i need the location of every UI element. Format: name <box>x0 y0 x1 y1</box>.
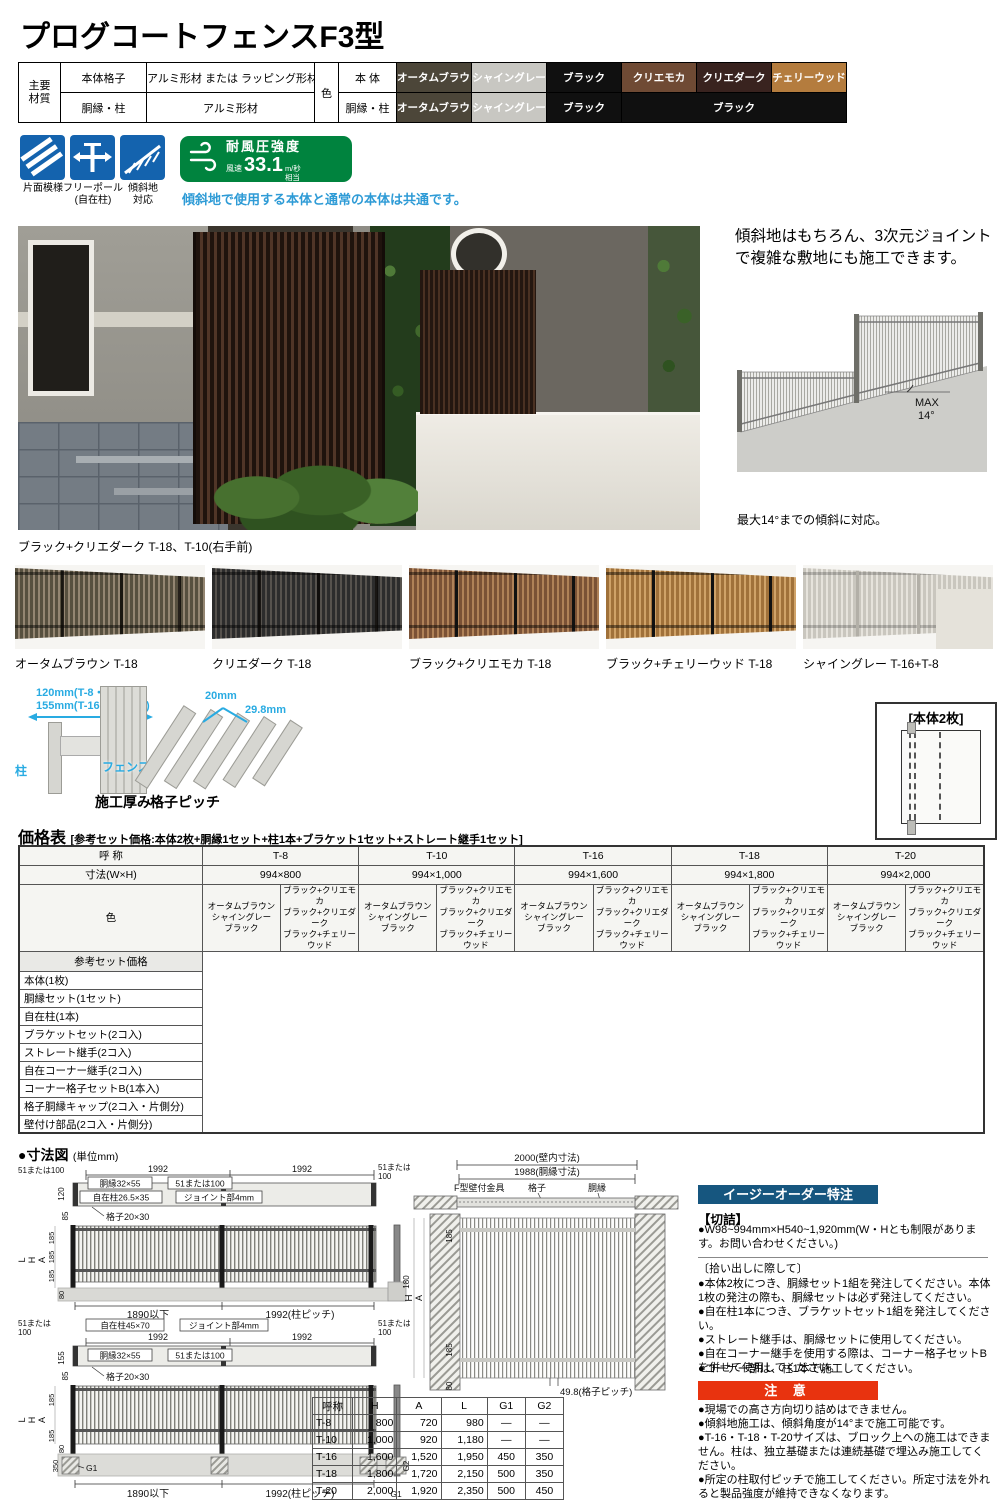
free-pole-icon <box>70 135 115 180</box>
dim-label: 100 <box>378 1328 392 1337</box>
wind-pressure-badge: 耐風圧強度 風速 33.1 m/秒 相当 <box>180 136 352 182</box>
spec-cell: — <box>487 1415 525 1432</box>
dim-label: 自在柱45×70 <box>100 1321 150 1331</box>
size-dimension: 994×1,000 <box>359 865 515 884</box>
dim-label: ジョイント部4mm <box>184 1193 254 1203</box>
dim-label: A <box>37 1257 47 1263</box>
single-face-pattern-icon <box>20 135 65 180</box>
two-panel-box: [本体2枚] <box>875 702 997 840</box>
size-header: T-18 <box>671 846 827 865</box>
slope-heading-line1: 傾斜地はもちろん、3次元ジョイント <box>735 226 993 248</box>
dim-label: 1992 <box>148 1332 168 1342</box>
white-garden-wall <box>416 412 700 530</box>
wall-mount-diagram: 2000(壁内寸法) 1988(胴縁寸法) F型壁付金具 格子 胴縁 185 H… <box>402 1152 704 1398</box>
dim-label: A <box>414 1295 424 1301</box>
post-stub-bottom <box>907 820 916 835</box>
size-header: T-20 <box>828 846 984 865</box>
dim-label: A <box>37 1417 47 1423</box>
color-swatch: ブラック <box>547 63 622 93</box>
dim-label: 185 <box>47 1251 56 1264</box>
icon-label: 傾斜地 対応 <box>108 183 178 206</box>
spec-cell: 350 <box>525 1466 563 1483</box>
dim-label: 胴縁32×55 <box>100 1179 141 1189</box>
dim-label: 120 <box>57 1187 66 1201</box>
color-swatch: ブラック <box>547 93 622 123</box>
post-label: 柱 <box>15 762 27 779</box>
spec-cell: 800 <box>353 1415 397 1432</box>
slope-heading: 傾斜地はもちろん、3次元ジョイント で複雑な敷地にも施工できます。 <box>735 226 993 269</box>
spec-cell: 720 <box>397 1415 441 1432</box>
badge-value: 33.1 <box>244 155 283 175</box>
color-group-a: オータムブラウン シャイングレー ブラック <box>359 884 437 951</box>
dim-label: 185 <box>47 1232 56 1245</box>
pickup-note: ●自在柱1本につき、ブラケットセット1組を発注してください。 <box>698 1306 994 1334</box>
variation-caption: ブラック+クリエモカ T-18 <box>409 655 551 672</box>
spec-cell: 2,000 <box>353 1483 397 1500</box>
spec-header: G1 <box>487 1398 525 1415</box>
corner-note: ●コーナー部は、柱1本で施工してください。 <box>698 1363 994 1377</box>
variation-caption: クリエダーク T-18 <box>212 655 311 672</box>
col-name-header: 呼 称 <box>19 846 202 865</box>
spec-cell: 2,150 <box>441 1466 487 1483</box>
caution-note: ●現場での高さ方向切り詰めはできません。 <box>698 1404 994 1418</box>
price-table: 呼 称 T-8 T-10 T-16 T-18 T-20 寸法(W×H) 994×… <box>18 845 985 1134</box>
dim-label: 51または100 <box>18 1166 65 1175</box>
spec-header: L <box>441 1398 487 1415</box>
spec-cell: — <box>525 1432 563 1449</box>
price-values-empty-area <box>202 951 984 1133</box>
dim-label: 185 <box>445 1229 454 1243</box>
dim-label: 85 <box>61 1371 70 1380</box>
color-target-frame: 胴縁・柱 <box>339 93 397 123</box>
dim-label: H <box>27 1417 37 1424</box>
dim-label: 1988(胴縁寸法) <box>514 1166 579 1178</box>
color-swatch: シャイングレー <box>472 93 547 123</box>
variation-caption: ブラック+チェリーウッド T-18 <box>606 655 772 672</box>
size-header: T-16 <box>515 846 671 865</box>
dim-label: 49.8(格子ピッチ) <box>560 1386 632 1398</box>
spec-cell: — <box>487 1432 525 1449</box>
spec-header: A <box>397 1398 441 1415</box>
price-row-label: 格子胴縁キャップ(2コ入・片側分) <box>19 1097 202 1115</box>
variation-image-shine-gray <box>803 565 993 649</box>
slope-support-icon <box>120 135 165 180</box>
price-row-label: ストレート継手(2コ入) <box>19 1043 202 1061</box>
size-dimension: 994×2,000 <box>828 865 984 884</box>
thickness-caption: 施工厚み <box>95 792 151 812</box>
easy-order-header: イージーオーダー特注 <box>698 1185 878 1204</box>
size-header: T-10 <box>359 846 515 865</box>
dim-label: 2000(壁内寸法) <box>514 1152 579 1164</box>
spec-cell: 450 <box>487 1449 525 1466</box>
color-group-b: ブラック+クリエモカ ブラック+クリエダーク ブラック+チェリーウッド <box>437 884 515 951</box>
dim-label: L <box>18 1257 27 1262</box>
spec-cell: 450 <box>525 1483 563 1500</box>
materials-material: アルミ形材 または ラッピング形材 <box>147 63 315 93</box>
dim-label: 100 <box>18 1328 32 1337</box>
dim-label: 1992 <box>292 1332 312 1342</box>
spec-cell: T-20 <box>313 1483 353 1500</box>
dim-label: 1992 <box>292 1164 312 1174</box>
color-swatch: チェリーウッド <box>772 63 847 93</box>
dimension-title: ●寸法図 <box>18 1147 68 1163</box>
color-group-b: ブラック+クリエモカ ブラック+クリエダーク ブラック+チェリーウッド <box>281 884 359 951</box>
dim-label: 1890以下 <box>127 1489 169 1500</box>
color-target-body: 本 体 <box>339 63 397 93</box>
variation-image-black-clie-mocha <box>409 565 599 649</box>
left-window <box>28 240 94 396</box>
spec-cell: T-18 <box>313 1466 353 1483</box>
slope-caption: 最大14°までの傾斜に対応。 <box>737 511 887 528</box>
price-row-label: 胴縁セット(1セット) <box>19 989 202 1007</box>
materials-part-label: 胴縁・柱 <box>61 93 147 123</box>
color-swatch-wide: ブラック <box>622 93 847 123</box>
size-dimension: 994×800 <box>202 865 358 884</box>
spec-cell: 920 <box>397 1432 441 1449</box>
spec-cell: 1,950 <box>441 1449 487 1466</box>
spec-cell: — <box>525 1415 563 1432</box>
dim-label: 80 <box>57 1445 66 1453</box>
hero-caption: ブラック+クリエダーク T-18、T-10(右手前) <box>18 538 252 555</box>
variation-image-clie-dark <box>212 565 402 649</box>
panel-dash-center <box>939 732 941 820</box>
variation-image-black-cherry-wood <box>606 565 796 649</box>
spec-cell: 1,180 <box>441 1432 487 1449</box>
color-group-b: ブラック+クリエモカ ブラック+クリエダーク ブラック+チェリーウッド <box>906 884 984 951</box>
dim-label: L <box>18 1417 27 1422</box>
color-swatch: クリエダーク <box>697 63 772 93</box>
variation-caption: オータムブラウン T-18 <box>15 655 138 672</box>
col-color-header: 色 <box>19 884 202 951</box>
size-dimension: 994×1,600 <box>515 865 671 884</box>
color-group-b: ブラック+クリエモカ ブラック+クリエダーク ブラック+チェリーウッド <box>749 884 827 951</box>
color-swatch: クリエモカ <box>622 63 697 93</box>
spec-cell: 1,720 <box>397 1466 441 1483</box>
caution-note: ●傾斜地施工は、傾斜角度が14°まで施工可能です。 <box>698 1418 994 1432</box>
bracket-shape <box>60 736 102 756</box>
spec-table: 呼称 H A L G1 G2 T-8800720980—— T-101,0009… <box>312 1397 564 1500</box>
dim-label: 85 <box>61 1211 70 1220</box>
color-group-a: オータムブラウン シャイングレー ブラック <box>671 884 749 951</box>
set-price-row-header: 参考セット価格 <box>19 951 202 971</box>
materials-material: アルミ形材 <box>147 93 315 123</box>
color-column-label: 色 <box>315 63 339 123</box>
slope-common-note: 傾斜地で使用する本体と通常の本体は共通です。 <box>182 189 467 208</box>
panel-dash-left <box>909 732 911 820</box>
dim-label: 51または100 <box>175 1179 224 1189</box>
catalog-page: { "page": { "title": "プログコートフェンスF3型" }, … <box>0 0 1000 1500</box>
spec-cell: 2,350 <box>441 1483 487 1500</box>
right-slat-fence <box>420 270 536 414</box>
price-row-label: コーナー格子セットB(1本入) <box>19 1079 202 1097</box>
variation-caption: シャイングレー T-16+T-8 <box>803 655 939 672</box>
pitch-dim-2: 29.8mm <box>245 704 286 716</box>
materials-table: 主要 材質 本体格子 アルミ形材 または ラッピング形材 色 本 体 オータムブ… <box>18 62 847 123</box>
materials-group-label: 主要 材質 <box>19 63 61 123</box>
dim-label: 185 <box>47 1394 56 1407</box>
dim-label: 胴縁 <box>588 1182 606 1193</box>
pickup-heading: 〔拾い出しに際して〕 <box>698 1263 994 1277</box>
badge-suffix: 相当 <box>285 174 301 182</box>
dim-label: 350 <box>51 1460 60 1473</box>
color-swatch: オータムブラウン <box>397 93 472 123</box>
color-swatch: シャイングレー <box>472 63 547 93</box>
panel-outline <box>901 730 981 824</box>
front-bushes <box>203 458 418 530</box>
price-row-label: 自在コーナー継手(2コ入) <box>19 1061 202 1079</box>
price-row-label: 壁付け部品(2コ入・片側分) <box>19 1115 202 1133</box>
dim-label: 格子 <box>528 1182 546 1193</box>
color-group-a: オータムブラウン シャイングレー ブラック <box>202 884 280 951</box>
badge-prefix: 風速 <box>226 165 242 173</box>
spec-cell: T-10 <box>313 1432 353 1449</box>
dim-label: G1 <box>86 1463 98 1473</box>
pickup-note: ●本体2枚につき、胴縁セット1組を発注してください。本体1枚の発注の際も、胴縁セ… <box>698 1278 994 1306</box>
dim-label: 155 <box>57 1351 66 1365</box>
page-title: プログコートフェンスF3型 <box>20 12 384 56</box>
caution-note: ●所定の柱取付ピッチで施工してください。所定寸法を外れると製品強度が維持できなく… <box>698 1474 994 1502</box>
price-row-label: 本体(1枚) <box>19 971 202 989</box>
price-row-label: ブラケットセット(2コ入) <box>19 1025 202 1043</box>
dim-label: 51または <box>18 1319 51 1328</box>
dim-label: 80 <box>57 1291 66 1299</box>
caution-header: 注 意 <box>698 1381 878 1400</box>
dim-label: 胴縁32×55 <box>100 1351 141 1361</box>
spec-header: G2 <box>525 1398 563 1415</box>
size-header: T-8 <box>202 846 358 865</box>
spec-header: 呼称 <box>313 1398 353 1415</box>
dim-label: 格子20×30 <box>106 1211 149 1222</box>
spec-cell: 1,800 <box>353 1466 397 1483</box>
pickup-note: ●ストレート継手は、胴縁セットに使用してください。 <box>698 1334 994 1348</box>
color-group-b: ブラック+クリエモカ ブラック+クリエダーク ブラック+チェリーウッド <box>593 884 671 951</box>
variation-image-autumn-brown <box>15 565 205 649</box>
slope-max-degrees: 14° <box>918 410 935 422</box>
pitch-caption: 格子ピッチ <box>150 792 220 812</box>
dim-label: ジョイント部4mm <box>189 1321 259 1331</box>
price-row-label: 自在柱(1本) <box>19 1007 202 1025</box>
spec-cell: 350 <box>525 1449 563 1466</box>
two-panel-title: [本体2枚] <box>877 708 995 727</box>
panel-dash-left2 <box>914 732 916 820</box>
color-swatch: オータムブラウン <box>397 63 472 93</box>
right-top-plants <box>648 226 700 426</box>
dim-label: 185 <box>445 1343 454 1357</box>
wind-icon <box>188 141 220 178</box>
spec-cell: 980 <box>441 1415 487 1432</box>
materials-part-label: 本体格子 <box>61 63 147 93</box>
dim-label: 185 <box>47 1430 56 1443</box>
post-section-shape <box>48 722 62 794</box>
color-group-a: オータムブラウン シャイングレー ブラック <box>515 884 593 951</box>
slope-illustration: MAX 14° <box>735 266 990 508</box>
spec-cell: 1,000 <box>353 1432 397 1449</box>
dim-label: 80 <box>445 1381 454 1390</box>
size-dimension: 994×1,800 <box>671 865 827 884</box>
dim-label: 自在柱26.5×35 <box>93 1193 150 1203</box>
post-stub-top <box>907 722 916 734</box>
divider <box>698 1257 988 1258</box>
dim-label: 1992 <box>148 1164 168 1174</box>
spec-cell: 1,600 <box>353 1449 397 1466</box>
cut-order-body: ●W98~994mm×H540~1,920mm(W・Hとも制限があります。お問い… <box>698 1224 994 1252</box>
spec-cell: 1,520 <box>397 1449 441 1466</box>
pitch-dim-1: 20mm <box>205 690 237 702</box>
col-dim-header: 寸法(W×H) <box>19 865 202 884</box>
dimension-diagram-1: 51または100 1992 1992 51または 100 胴縁32×55 51ま… <box>18 1162 410 1320</box>
dim-label: 185 <box>47 1270 56 1283</box>
caution-note: ●T-16・T-18・T-20サイズは、ブロック上への施工はできません。柱は、独… <box>698 1432 994 1474</box>
dim-label: H <box>27 1257 37 1264</box>
slope-max-label: MAX <box>915 397 940 409</box>
dim-label: F型壁付金具 <box>454 1182 505 1193</box>
hero-photo <box>18 226 700 530</box>
dim-label: 51または100 <box>175 1351 224 1361</box>
dim-label: 格子20×30 <box>106 1371 149 1382</box>
spec-cell: T-8 <box>313 1415 353 1432</box>
spec-header: H <box>353 1398 397 1415</box>
spec-cell: 500 <box>487 1466 525 1483</box>
caution-notes: ●現場での高さ方向切り詰めはできません。 ●傾斜地施工は、傾斜角度が14°まで施… <box>698 1404 994 1502</box>
dim-label: 100 <box>378 1172 392 1181</box>
spec-cell: 500 <box>487 1483 525 1500</box>
color-group-a: オータムブラウン シャイングレー ブラック <box>828 884 906 951</box>
spec-cell: 1,920 <box>397 1483 441 1500</box>
pickup-notes: ●本体2枚につき、胴縁セット1組を発注してください。本体1枚の発注の際も、胴縁セ… <box>698 1278 994 1376</box>
badge-title: 耐風圧強度 <box>226 136 301 155</box>
spec-cell: T-16 <box>313 1449 353 1466</box>
